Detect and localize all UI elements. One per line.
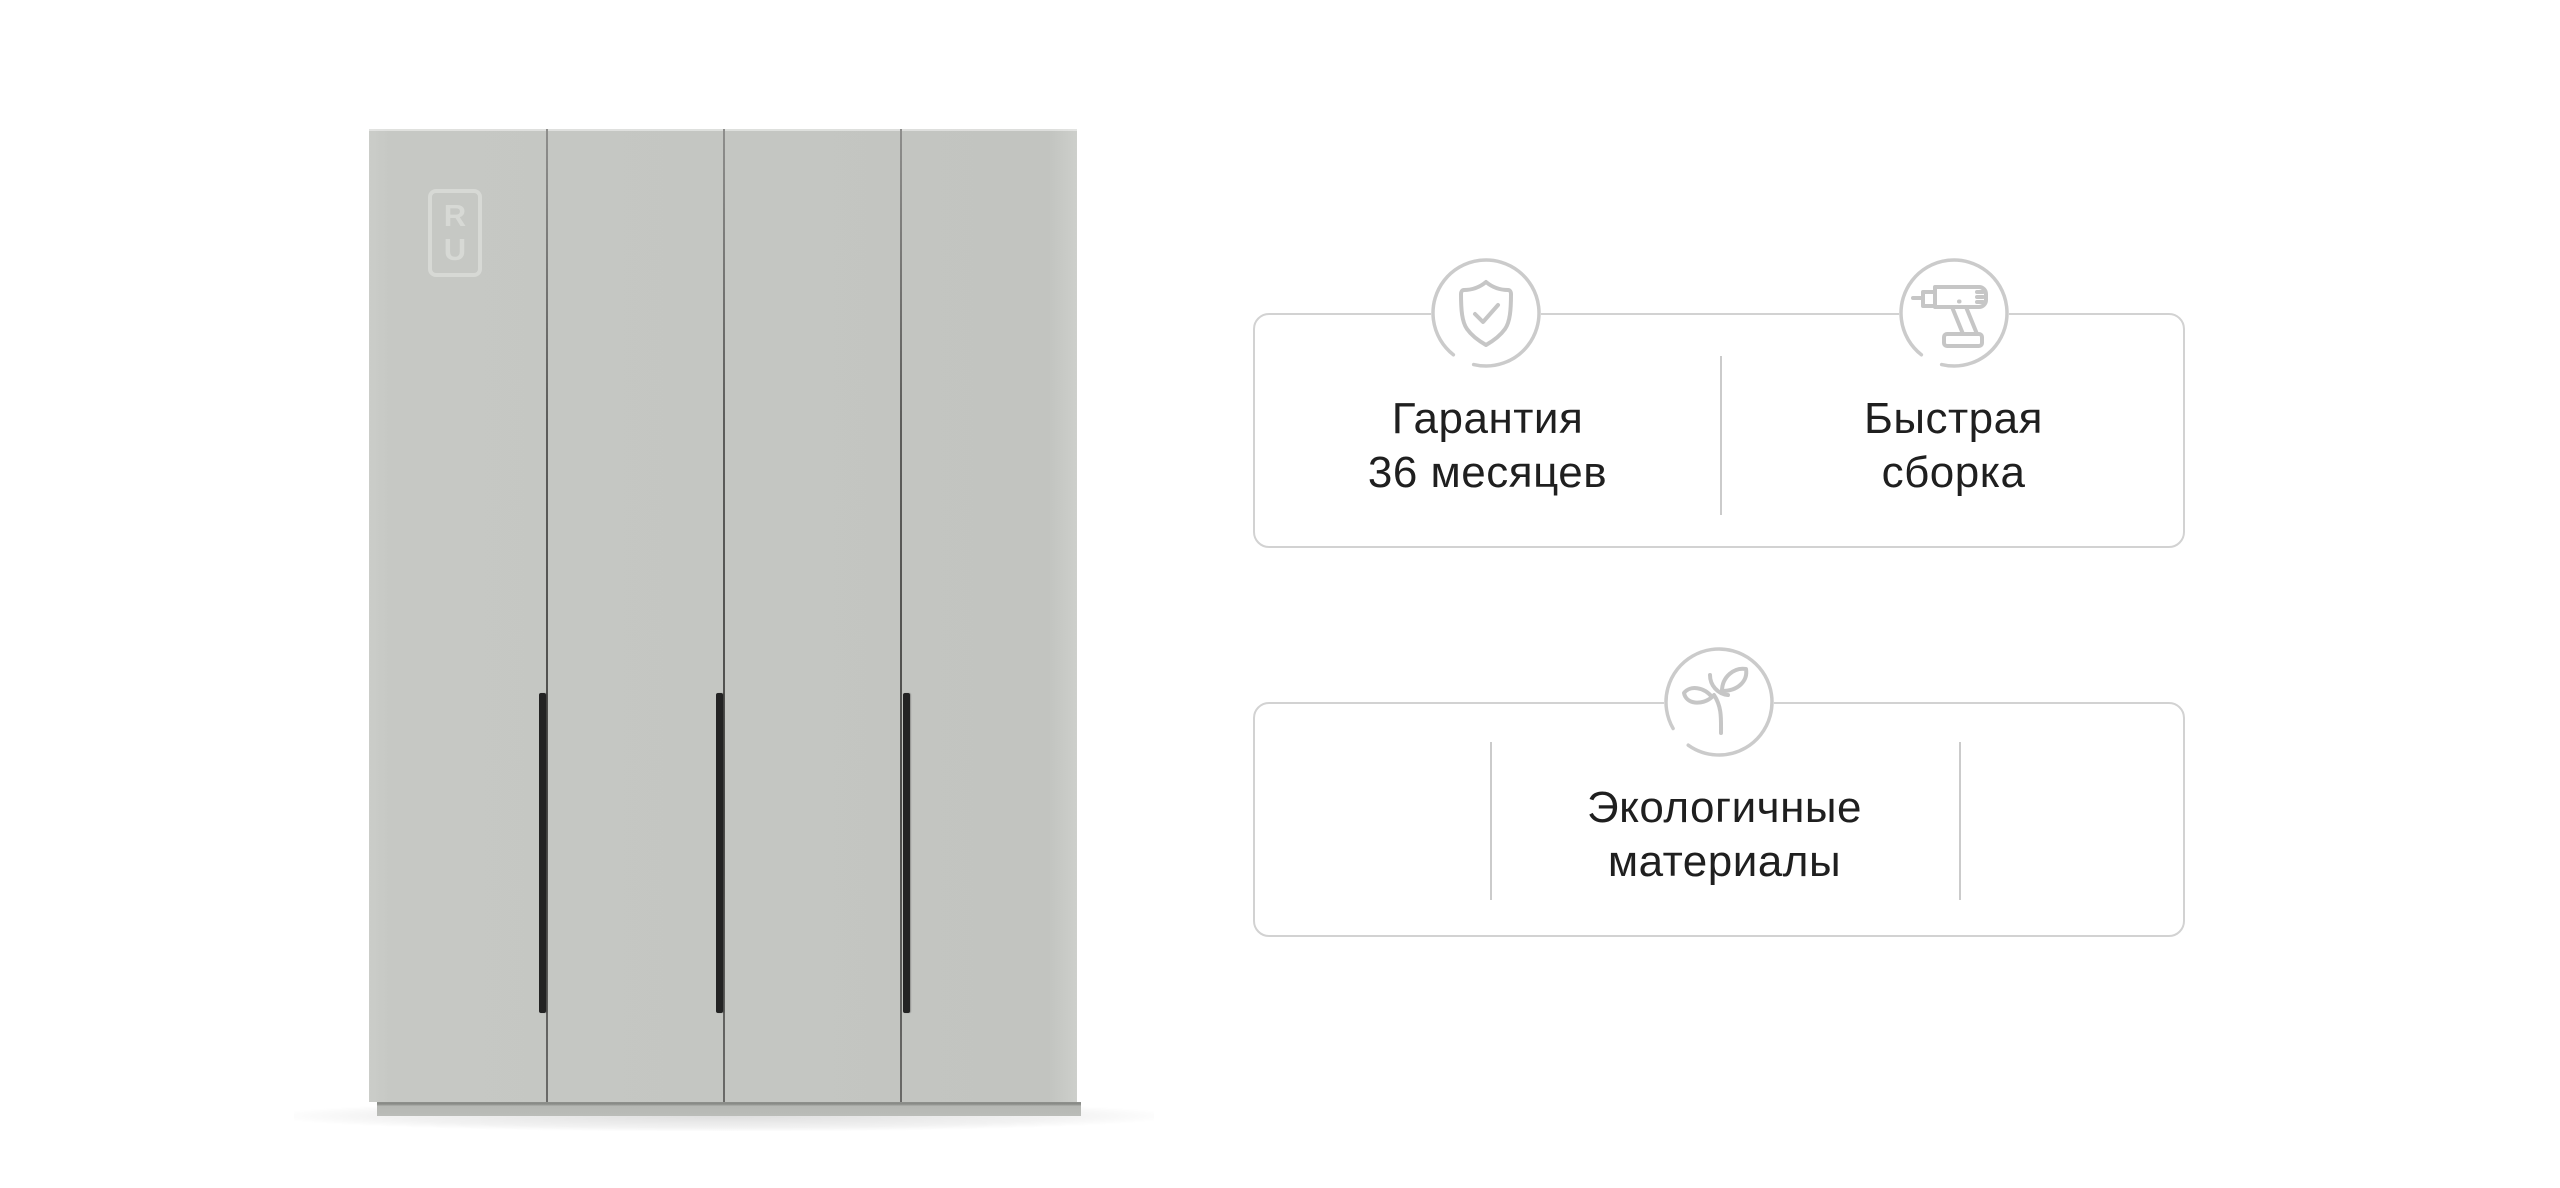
feature-line: Гарантия — [1255, 392, 1720, 446]
door-handle — [903, 693, 910, 1013]
leaf-icon — [1664, 647, 1774, 757]
shield-check-icon — [1431, 258, 1541, 368]
feature-eco-label: Экологичные материалы — [1490, 781, 1959, 889]
feature-line: Экологичные — [1490, 781, 1959, 835]
brand-watermark-logo: R U — [428, 189, 482, 277]
product-image-wardrobe: R U — [369, 129, 1077, 1116]
watermark-letter-r: R — [444, 199, 466, 233]
feature-assembly-label: Быстрая сборка — [1720, 392, 2187, 500]
door-handle — [716, 693, 723, 1013]
watermark-letter-u: U — [444, 233, 466, 267]
feature-card-warranty-assembly: Гарантия 36 месяцев Быстрая сборка — [1253, 313, 2185, 548]
card-divider — [1959, 742, 1961, 900]
feature-card-eco-materials: Экологичные материалы — [1253, 702, 2185, 937]
feature-line: 36 месяцев — [1255, 446, 1720, 500]
feature-line: сборка — [1720, 446, 2187, 500]
door-gap — [723, 129, 725, 1102]
feature-line: материалы — [1490, 835, 1959, 889]
wardrobe-plinth — [377, 1102, 1081, 1116]
door-gap — [546, 129, 548, 1102]
feature-warranty-label: Гарантия 36 месяцев — [1255, 392, 1720, 500]
feature-line: Быстрая — [1720, 392, 2187, 446]
drill-icon — [1899, 258, 2009, 368]
door-handle — [539, 693, 546, 1013]
door-gap — [900, 129, 902, 1102]
wardrobe-doors: R U — [369, 129, 1077, 1102]
